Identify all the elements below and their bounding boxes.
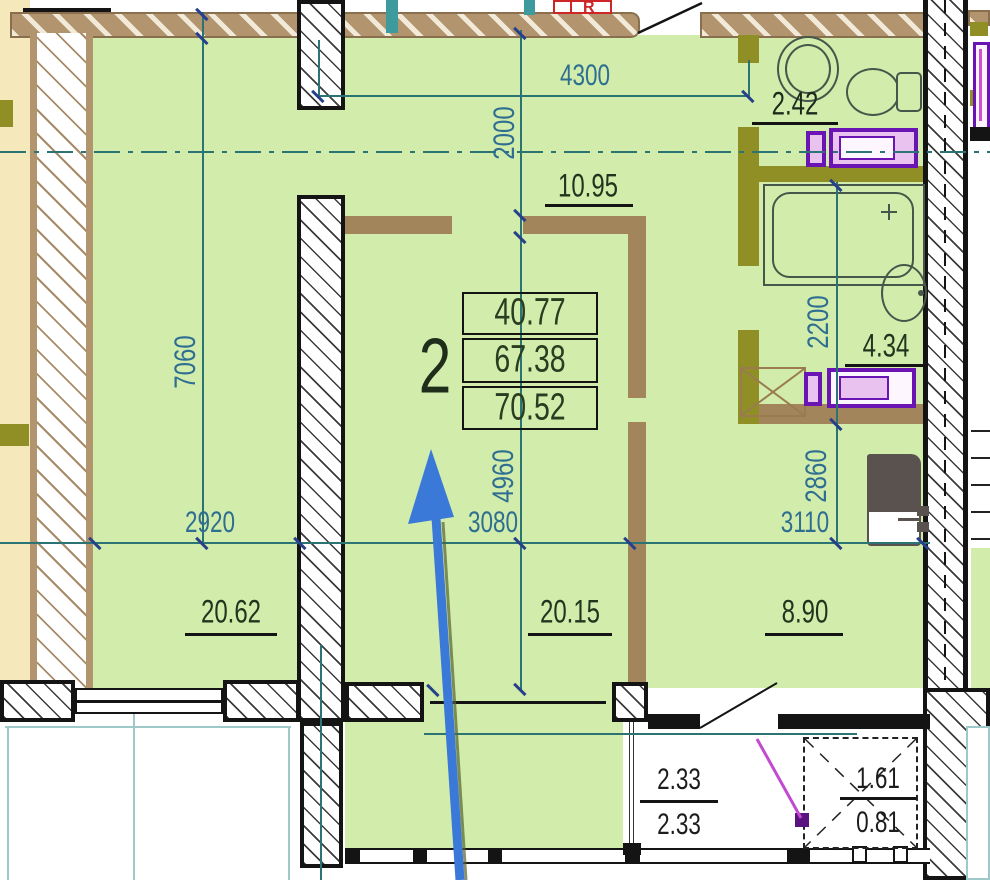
- floor-plan: R: [0, 0, 990, 880]
- plan-lines: [0, 0, 990, 880]
